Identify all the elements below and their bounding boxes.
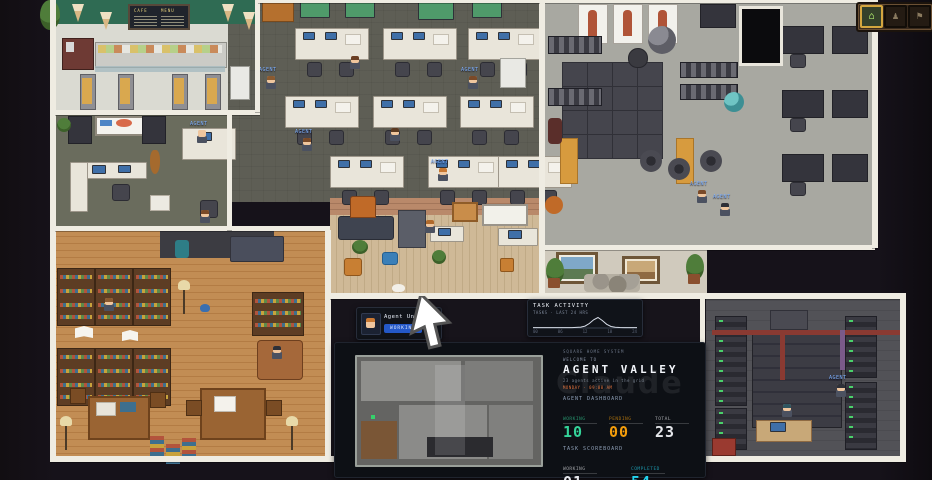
stool: [500, 258, 514, 272]
punching-bag: [548, 118, 562, 144]
agent-character[interactable]: [720, 203, 730, 216]
agent-avatar: [361, 313, 381, 335]
hotbar: ⌂ ♟ ⚑: [856, 2, 932, 32]
agent-character[interactable]: [197, 130, 207, 143]
dumbbell-rack: [680, 62, 738, 78]
floor-lamp-pole: [65, 426, 67, 450]
monitor: [325, 32, 337, 40]
monitor: [391, 32, 403, 40]
exercise-ball-teal: [724, 92, 744, 112]
agents-icon: ♟: [892, 11, 898, 22]
bench-cushion: [82, 78, 92, 104]
office-chair: [112, 184, 130, 201]
floor-lamp: [178, 280, 190, 290]
menu-header-left: CAFE: [134, 8, 157, 13]
dashboard-system-line: SQUARE HOME SYSTEM: [563, 349, 695, 354]
robot-vacuum[interactable]: [382, 252, 398, 265]
dashboard-title: AGENT VALLEY: [563, 363, 695, 376]
floor-lamp-pole: [291, 426, 293, 450]
hotbar-slot-tasks[interactable]: ⚑: [908, 5, 931, 28]
weight-bench: [700, 4, 736, 28]
plant[interactable]: [352, 240, 368, 254]
minimap[interactable]: [355, 355, 543, 467]
cable-conduit: [712, 330, 902, 335]
papers: [518, 34, 534, 45]
papers: [510, 102, 526, 113]
sofa: [338, 216, 394, 240]
wood-chair: [150, 392, 166, 408]
gym-mat: [637, 110, 663, 135]
bench-cushion: [120, 78, 130, 104]
copier: [500, 58, 526, 88]
rock-pile: [584, 274, 640, 292]
agent-name-label: AGENT: [690, 182, 708, 187]
wood-chair: [186, 400, 202, 416]
monitor: [118, 165, 131, 173]
gym-mat: [612, 134, 638, 159]
wood-chair: [70, 388, 86, 404]
stat-working: WORKING10: [563, 405, 597, 440]
stat-pending: PENDING00: [609, 405, 643, 440]
gym-machine: [782, 154, 824, 182]
machine-seat: [790, 182, 806, 196]
monitor: [506, 160, 518, 168]
monitor: [381, 100, 393, 108]
monitor: [303, 32, 315, 40]
table-books: [96, 402, 116, 416]
guitar: [150, 150, 160, 174]
bookshelf: [57, 268, 95, 326]
dumbbell-rack: [548, 88, 602, 106]
monitor: [315, 100, 327, 108]
open-book: [214, 396, 236, 412]
table-books: [120, 402, 136, 412]
bookcase: [68, 116, 92, 144]
dashboard-subtitle: 23 agents active in the grid: [563, 378, 695, 383]
task-chart-ticks: 0006121824: [533, 329, 637, 334]
agent-character[interactable]: [836, 384, 846, 397]
agent-character[interactable]: [302, 138, 312, 151]
bench-cushion: [174, 78, 184, 104]
task-panel-title: TASK ACTIVITY: [533, 303, 589, 309]
yoga-mat: [560, 138, 578, 184]
monitor: [438, 228, 451, 236]
gym-machine: [832, 154, 868, 182]
cable-conduit: [840, 330, 845, 370]
office-chair: [510, 190, 525, 205]
server-rack: [845, 382, 877, 450]
counter-glass: [95, 66, 225, 72]
whiteboard-chart: [116, 119, 132, 127]
coffee-machine-detail: [66, 42, 74, 52]
agent-character[interactable]: [438, 168, 448, 181]
paper-stack: [150, 195, 170, 211]
monitor: [508, 230, 522, 239]
machine-seat: [790, 54, 806, 68]
office-chair: [307, 62, 322, 77]
office-chair: [504, 130, 519, 145]
bookshelf: [133, 268, 171, 326]
monitor: [476, 32, 488, 40]
game-viewport: AGENTAGENTAGENTAGENTAGENTAGENTAGENTAGENT…: [0, 0, 932, 480]
tool-cart[interactable]: [712, 438, 736, 456]
monitor: [92, 165, 106, 174]
office-chair: [417, 130, 432, 145]
book-stack: [150, 436, 164, 456]
agent-character[interactable]: [697, 190, 707, 203]
agent-character[interactable]: [782, 404, 792, 417]
plant-pot: [548, 278, 560, 288]
whiteboard-chart: [100, 120, 112, 126]
wall-tv: [472, 2, 502, 18]
bookcase: [142, 116, 166, 144]
task-activity-chart: [533, 315, 637, 329]
agent-name-label: AGENT: [829, 376, 847, 381]
exec-desk: [70, 162, 88, 212]
backpack: [175, 240, 189, 258]
papers: [478, 162, 494, 173]
monitor: [498, 32, 510, 40]
agent-name-label: AGENT: [713, 195, 731, 200]
gym-mat: [637, 86, 663, 111]
bookshelf: [95, 268, 133, 326]
task-scoreboard-header: TASK SCOREBOARD: [563, 446, 695, 452]
anatomy-poster: [613, 4, 643, 44]
office-chair: [374, 190, 389, 205]
counter-food: [98, 45, 222, 53]
floor-lamp: [60, 416, 72, 426]
map-icon: ⌂: [868, 11, 874, 22]
book-stack: [182, 438, 196, 458]
storage-shelf: [262, 2, 294, 22]
tasks-icon: ⚑: [916, 11, 922, 22]
menu-header-right: MENU: [161, 8, 184, 13]
bookshelf: [252, 292, 304, 336]
monitor: [770, 422, 786, 432]
exercise-ball: [648, 26, 676, 54]
papers: [423, 102, 439, 113]
agent-character[interactable]: [104, 298, 114, 311]
plant-pot: [688, 274, 700, 284]
kettlebell: [628, 48, 648, 68]
wall-tv: [300, 2, 330, 18]
stat-completed: COMPLETED54: [631, 455, 695, 480]
monitor: [293, 100, 305, 108]
gym-mat: [587, 110, 613, 135]
sofa: [230, 236, 284, 262]
agent-character[interactable]: [266, 76, 276, 89]
dashboard-panel: SQUARE HOME SYSTEM WELCOME TO AGENT VALL…: [334, 342, 706, 478]
cork-board: [452, 202, 478, 222]
bird[interactable]: [200, 304, 210, 312]
weight-plates: [700, 150, 722, 172]
gym-mat: [562, 62, 588, 87]
agent-character[interactable]: [272, 346, 282, 359]
hotbar-slot-agents[interactable]: ♟: [884, 5, 907, 28]
dashboard-datetime: MONDAY · 09:00 AM: [563, 385, 695, 390]
entrance-arch: [350, 196, 376, 218]
papers: [345, 34, 361, 45]
dashboard-welcome: WELCOME TO: [563, 357, 695, 362]
agent-name-label: AGENT: [461, 68, 479, 73]
weight-plates: [668, 158, 690, 180]
monitor: [360, 160, 372, 168]
gym-mat: [562, 110, 588, 135]
lounge-chair: [344, 258, 362, 276]
agent-name-label: AGENT: [295, 130, 313, 135]
server-rack: [845, 316, 877, 378]
gym-mat: [587, 134, 613, 159]
agent-name-label: AGENT: [259, 68, 277, 73]
wood-chair: [266, 400, 282, 416]
wall-tv: [418, 2, 454, 20]
gym-mat: [612, 86, 638, 111]
office-chair: [427, 62, 442, 77]
gym-machine: [782, 90, 824, 118]
fridge: [230, 66, 250, 100]
monitor: [458, 160, 470, 168]
ac-unit: [770, 310, 808, 330]
doorway: [739, 6, 783, 66]
weight-plates: [640, 150, 662, 172]
plant[interactable]: [432, 250, 446, 264]
agent-character[interactable]: [350, 56, 360, 69]
papers: [433, 34, 449, 45]
gym-machine: [832, 90, 868, 118]
hotbar-slot-map[interactable]: ⌂: [860, 5, 883, 28]
plant[interactable]: [57, 118, 71, 132]
cafe-menu-board: CAFE MENU: [128, 4, 190, 30]
agent-dashboard-header: AGENT DASHBOARD: [563, 396, 695, 402]
papers: [335, 102, 351, 113]
papers: [380, 162, 396, 173]
agent-character[interactable]: [425, 220, 435, 233]
agent-character[interactable]: [390, 128, 400, 141]
office-chair: [472, 130, 487, 145]
monitor: [413, 32, 425, 40]
office-chair: [395, 62, 410, 77]
gym-mat: [612, 110, 638, 135]
bench-cushion: [207, 78, 217, 104]
monitor: [490, 100, 502, 108]
dumbbell-rack: [548, 36, 602, 54]
kiosk: [398, 210, 426, 248]
office-chair: [329, 130, 344, 145]
floor-lamp: [286, 416, 298, 426]
office-chair: [480, 62, 495, 77]
gym-machine: [782, 26, 824, 54]
agent-name-label: AGENT: [431, 160, 449, 165]
cat[interactable]: [392, 284, 405, 292]
floor-lamp-pole: [183, 290, 185, 314]
minimap-player-dot: [371, 415, 375, 419]
gym-mat: [587, 62, 613, 87]
task-activity-panel: TASK ACTIVITY TASKS · LAST 24 HRS 000612…: [527, 299, 643, 337]
agent-character[interactable]: [200, 210, 210, 223]
stat-working: WORKING01: [563, 455, 627, 480]
monitor: [468, 100, 480, 108]
monitor: [403, 100, 415, 108]
agent-character[interactable]: [468, 76, 478, 89]
agent-name-label: AGENT: [190, 122, 208, 127]
mouse-cursor: [400, 296, 464, 364]
stat-total: TOTAL23: [655, 405, 689, 440]
machine-seat: [790, 118, 806, 132]
medicine-ball: [545, 196, 563, 214]
wall-tv: [345, 2, 375, 18]
monitor: [338, 160, 350, 168]
wall-whiteboard: [482, 204, 528, 226]
